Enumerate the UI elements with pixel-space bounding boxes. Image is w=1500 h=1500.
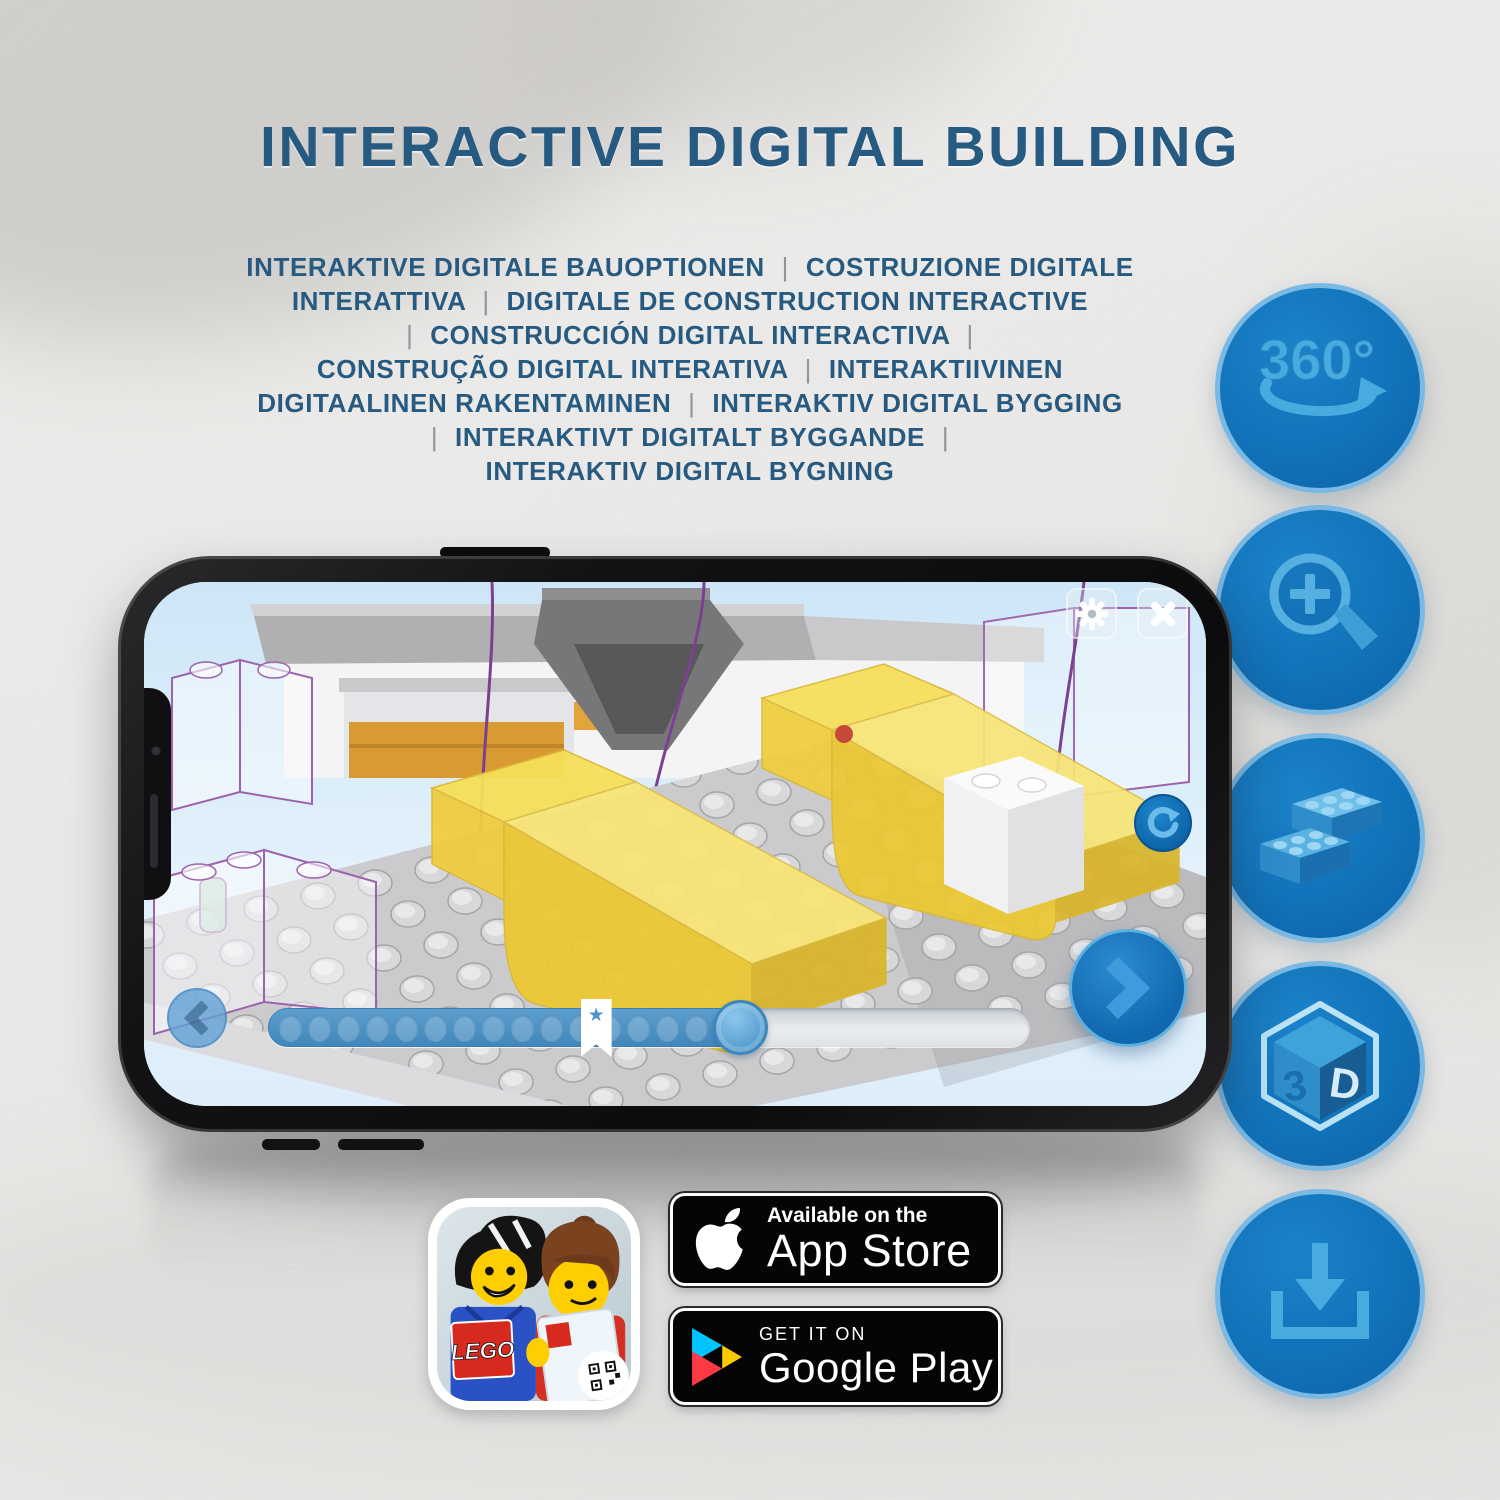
apple-logo-icon bbox=[693, 1207, 751, 1273]
google-play-line2: Google Play bbox=[759, 1345, 993, 1391]
subtitle-line: CONSTRUÇÃO DIGITAL INTERATIVA | INTERAKT… bbox=[0, 352, 1380, 386]
feature-zoom-icon bbox=[1215, 505, 1425, 715]
360-degree-icon: 360° bbox=[1245, 313, 1395, 463]
next-step-button[interactable] bbox=[1069, 929, 1187, 1047]
lego-minifigures-art: LEGO bbox=[437, 1207, 631, 1401]
rotate-arrow-icon bbox=[1144, 804, 1182, 842]
google-play-icon bbox=[691, 1328, 743, 1386]
lego-logo-text: LEGO bbox=[451, 1337, 515, 1365]
chevron-right-icon bbox=[1104, 957, 1152, 1019]
settings-button[interactable] bbox=[1066, 588, 1117, 639]
page-title: INTERACTIVE DIGITAL BUILDING bbox=[0, 114, 1500, 180]
slider-fill bbox=[268, 1008, 759, 1047]
phone-notch bbox=[144, 688, 171, 900]
google-play-badge[interactable]: GET IT ON Google Play bbox=[670, 1308, 1001, 1405]
feature-download-icon bbox=[1215, 1189, 1425, 1399]
subtitle-line: | INTERAKTIVT DIGITALT BYGGANDE | bbox=[0, 420, 1380, 454]
earpiece-speaker bbox=[150, 794, 158, 868]
3d-cube-icon: 3 D bbox=[1254, 998, 1386, 1134]
magnifier-plus-icon bbox=[1252, 542, 1388, 678]
feature-bricks-icon bbox=[1215, 733, 1425, 943]
close-icon bbox=[1146, 597, 1180, 631]
subtitle-line: | CONSTRUCCIÓN DIGITAL INTERACTIVA | bbox=[0, 318, 1380, 352]
feature-360-rotation-icon: 360° bbox=[1215, 283, 1425, 493]
app-store-badge[interactable]: Available on the App Store bbox=[670, 1193, 1001, 1286]
subtitle-line: INTERATTIVA | DIGITALE DE CONSTRUCTION I… bbox=[0, 284, 1380, 318]
cube-face-d: D bbox=[1327, 1058, 1364, 1109]
white-brick-box bbox=[944, 756, 1084, 914]
360-label: 360° bbox=[1259, 328, 1375, 391]
slider-step-dots bbox=[279, 1009, 737, 1048]
app-store-line2: App Store bbox=[767, 1227, 972, 1275]
build-progress-slider[interactable]: ★ bbox=[268, 1008, 1030, 1047]
front-camera bbox=[151, 746, 161, 756]
gear-icon bbox=[1075, 597, 1109, 631]
lego-app-icon: LEGO bbox=[428, 1198, 640, 1410]
phone-volume-button bbox=[338, 1139, 424, 1150]
star-icon: ★ bbox=[588, 999, 605, 1033]
phone-screen: ★ bbox=[144, 582, 1206, 1106]
google-play-line1: GET IT ON bbox=[759, 1323, 993, 1345]
rotate-view-button[interactable] bbox=[1134, 794, 1192, 852]
subtitle-line: DIGITAALINEN RAKENTAMINEN | INTERAKTIV D… bbox=[0, 386, 1380, 420]
slider-handle[interactable] bbox=[713, 1000, 768, 1055]
download-icon bbox=[1255, 1229, 1385, 1359]
app-store-line1: Available on the bbox=[767, 1204, 972, 1227]
subtitle-multilanguage: INTERAKTIVE DIGITALE BAUOPTIONEN | COSTR… bbox=[0, 250, 1380, 488]
transparent-bricks bbox=[172, 660, 312, 810]
chevron-left-icon bbox=[184, 1001, 210, 1035]
close-button[interactable] bbox=[1137, 588, 1188, 639]
subtitle-line: INTERAKTIV DIGITAL BYGNING bbox=[0, 454, 1380, 488]
feature-3d-view-icon: 3 D bbox=[1215, 961, 1425, 1171]
phone-volume-button bbox=[262, 1139, 320, 1150]
previous-step-button[interactable] bbox=[167, 988, 227, 1048]
smartphone: ★ bbox=[118, 556, 1232, 1132]
subtitle-line: INTERAKTIVE DIGITALE BAUOPTIONEN | COSTR… bbox=[0, 250, 1380, 284]
lego-bricks-icon bbox=[1250, 778, 1390, 898]
